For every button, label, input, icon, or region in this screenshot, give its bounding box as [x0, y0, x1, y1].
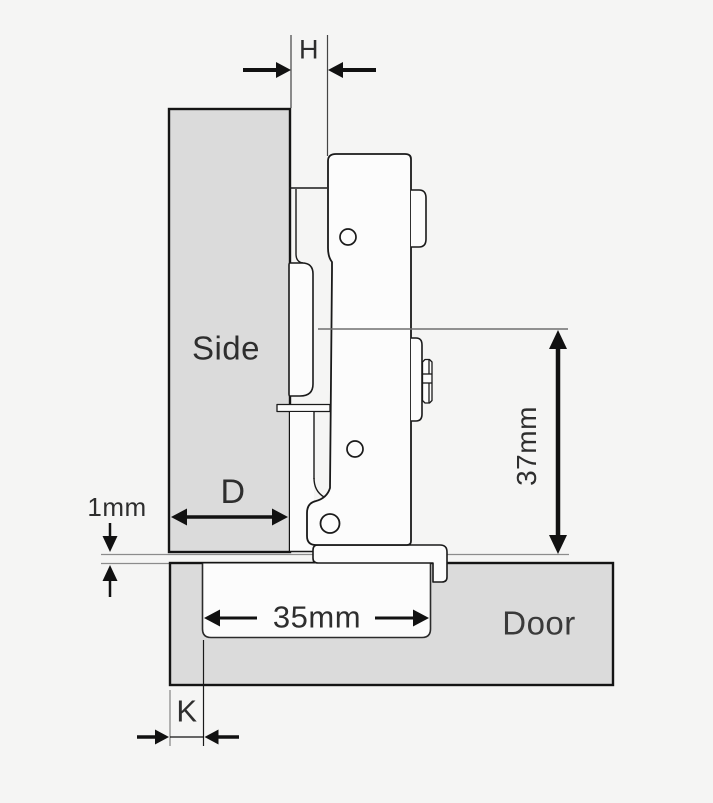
dim-label-k: K: [176, 696, 197, 727]
arm-tab-upper: [411, 190, 426, 247]
dim-label-1mm: 1mm: [87, 494, 146, 520]
dim-label-37mm: 37mm: [513, 406, 541, 486]
dim-label-h: H: [299, 37, 319, 64]
arm-tab-lower: [411, 338, 422, 421]
hinge: [277, 154, 447, 582]
hinge-mounting-diagram: H Side D 1mm 35mm Door 37mm K: [0, 0, 713, 803]
side-panel-label: Side: [192, 332, 260, 365]
door-panel-label: Door: [502, 607, 576, 640]
gap-dimension: [103, 523, 118, 597]
axis-dimension: [549, 330, 567, 554]
screw-hole-upper: [340, 229, 356, 245]
screw-hole-lower: [347, 441, 363, 457]
diagram-drawing: [0, 0, 713, 803]
dim-label-d: D: [220, 475, 245, 509]
dim-label-35mm: 35mm: [273, 602, 361, 633]
pivot-hole: [321, 514, 340, 533]
hinge-arm: [307, 154, 411, 545]
adjustment-screw: [423, 360, 433, 404]
